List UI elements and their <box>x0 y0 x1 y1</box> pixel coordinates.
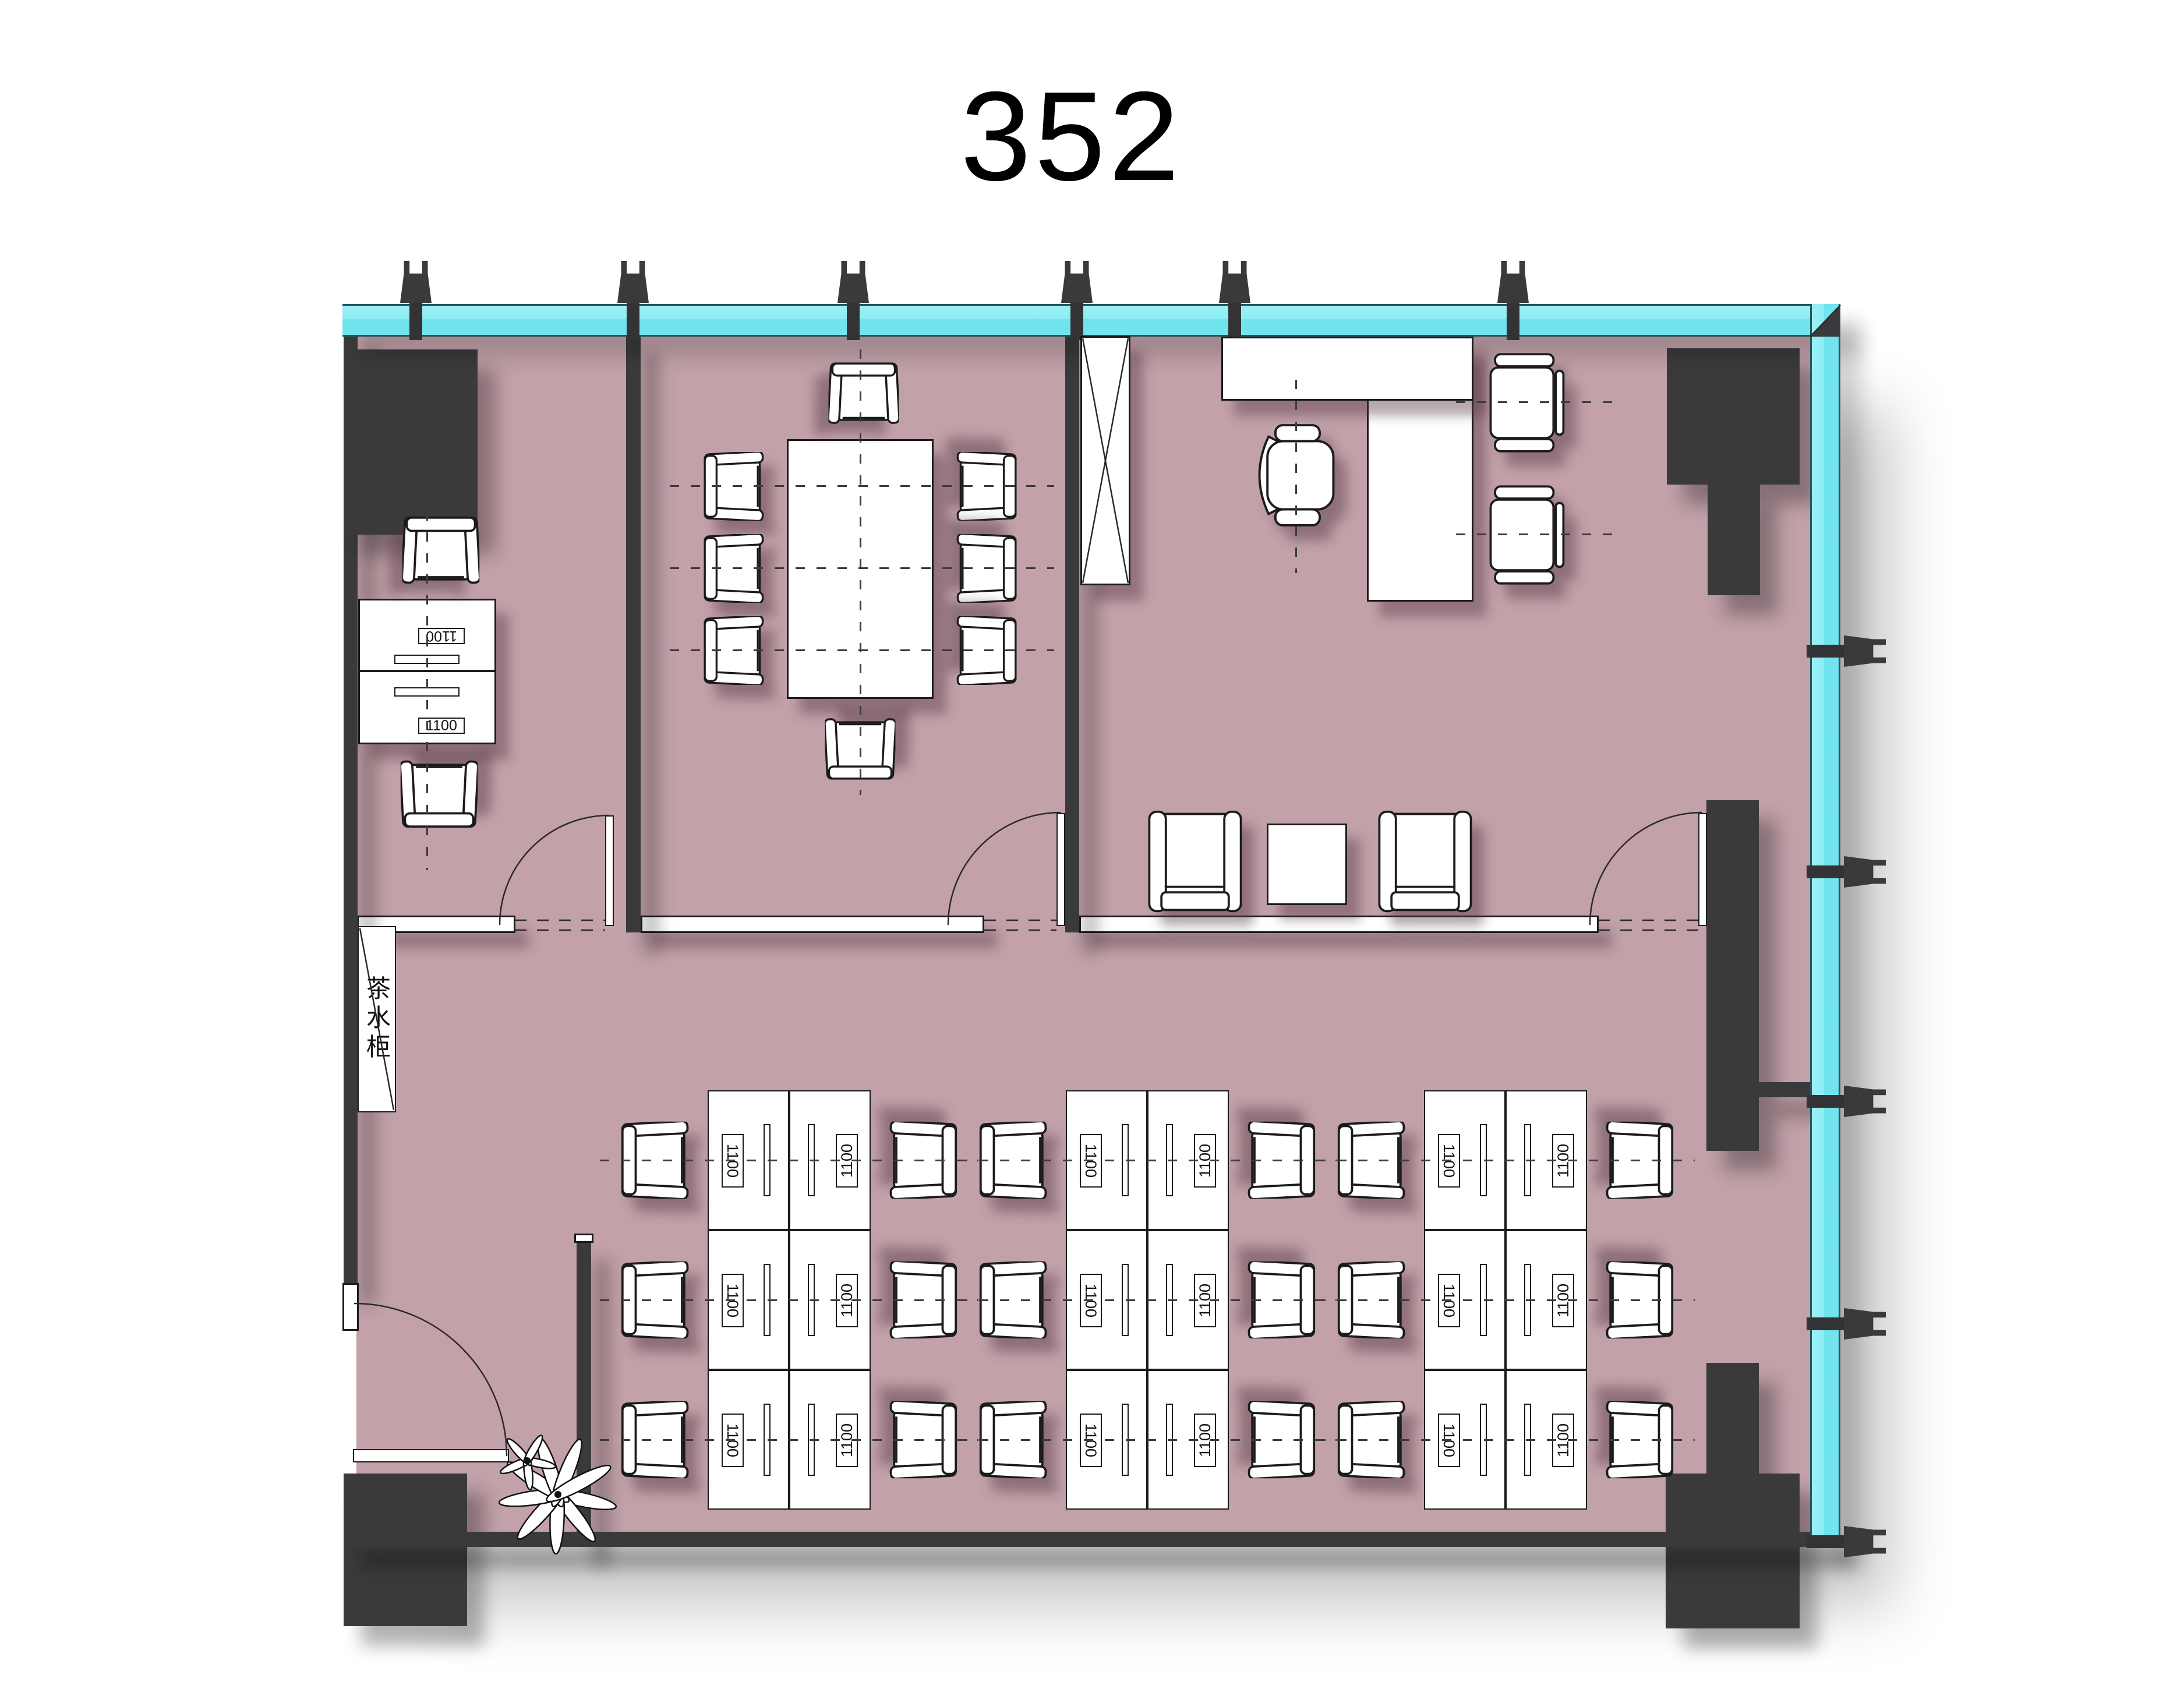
wall-interior-wall-2 <box>1065 335 1079 932</box>
facade-clamp-icon <box>1061 261 1093 303</box>
centerline-dashed <box>670 567 1054 569</box>
right-mullion-1 <box>1807 865 1844 878</box>
desk-length-label: 1100 <box>418 718 465 734</box>
wall-pier-glass-connector <box>1759 1082 1812 1097</box>
wall-entry-stub-wall <box>577 1241 591 1546</box>
centerline-dashed <box>670 649 1054 651</box>
facade-clamp-icon <box>400 261 432 303</box>
facade-clamp-icon <box>1844 1308 1886 1340</box>
facade-clamp-icon <box>1844 635 1886 667</box>
wall-bottomright-pier <box>1706 1363 1759 1475</box>
tea-water-cabinet-label: 茶水柜 <box>359 976 395 1063</box>
partition-wall-partition-middle <box>641 916 984 933</box>
centerline-dashed <box>600 1299 978 1301</box>
wall-topright-column <box>1667 348 1800 485</box>
centerline-dashed <box>860 349 861 795</box>
top-mullion-4 <box>1228 301 1241 340</box>
right-mullion-2 <box>1807 1095 1844 1108</box>
door-leaf <box>1056 813 1065 926</box>
desk-length-label: 1100 <box>418 628 465 644</box>
wall-interior-wall-1 <box>626 335 641 932</box>
glass-wall-top <box>342 304 1840 337</box>
centerline-dashed <box>1316 1160 1695 1161</box>
door-leaf <box>605 815 614 926</box>
right-mullion-0 <box>1807 645 1844 658</box>
lounge-chair <box>1136 810 1254 914</box>
right-mullion-3 <box>1807 1317 1844 1330</box>
centerline-dashed <box>426 511 428 870</box>
tea-water-cabinet: 茶水柜 <box>358 926 396 1112</box>
conference-chair <box>829 358 899 440</box>
wall-bottomleft-column <box>344 1474 467 1626</box>
centerline-dashed <box>958 1439 1337 1441</box>
centerline-dashed <box>1316 1299 1695 1301</box>
left-room-chair <box>402 515 480 598</box>
room-number: 352 <box>856 64 1287 210</box>
facade-clamp-icon <box>1844 1086 1886 1117</box>
lounge-side-table <box>1267 824 1347 905</box>
centerline-dashed <box>1456 533 1623 535</box>
wall-topright-stem <box>1708 485 1760 595</box>
centerline-dashed <box>1316 1439 1695 1441</box>
centerline-dashed <box>600 1160 978 1161</box>
storage-cabinet-x <box>1080 336 1130 585</box>
centerline-dashed <box>1295 380 1297 573</box>
entry-door-jamb <box>342 1283 359 1331</box>
centerline-dashed <box>958 1160 1337 1161</box>
wall-bottom-wall <box>344 1532 1839 1547</box>
top-mullion-2 <box>847 301 860 340</box>
office-desk-top <box>1221 337 1473 401</box>
centerline-dashed <box>1456 401 1623 403</box>
glass-wall-right <box>1810 304 1840 1548</box>
left-room-chair <box>400 746 478 829</box>
facade-clamp-icon <box>1219 261 1250 303</box>
floor-plan: 352 110011001100110011001100110011001100… <box>0 0 2184 1689</box>
centerline-dashed <box>958 1299 1337 1301</box>
facade-clamp-icon <box>1497 261 1529 303</box>
facade-clamp-icon <box>1844 1526 1886 1557</box>
facade-clamp-icon <box>1844 856 1886 888</box>
wall-mid-right-pier <box>1706 800 1759 1151</box>
centerline-dashed <box>600 1439 978 1441</box>
top-mullion-5 <box>1507 301 1519 340</box>
door-leaf <box>1698 813 1707 926</box>
centerline-dashed <box>670 485 1054 487</box>
stub-wall-cap <box>574 1234 593 1243</box>
top-mullion-0 <box>409 301 422 340</box>
wall-topleft-column <box>344 349 478 535</box>
door-leaf <box>353 1449 509 1462</box>
facade-clamp-icon <box>617 261 649 303</box>
partition-wall-partition-right <box>1079 916 1599 933</box>
top-mullion-3 <box>1070 301 1083 340</box>
lounge-chair <box>1366 810 1485 914</box>
top-mullion-1 <box>627 301 639 340</box>
wall-bottomright-column <box>1666 1474 1800 1628</box>
facade-clamp-icon <box>837 261 869 303</box>
right-mullion-4 <box>1807 1535 1844 1548</box>
